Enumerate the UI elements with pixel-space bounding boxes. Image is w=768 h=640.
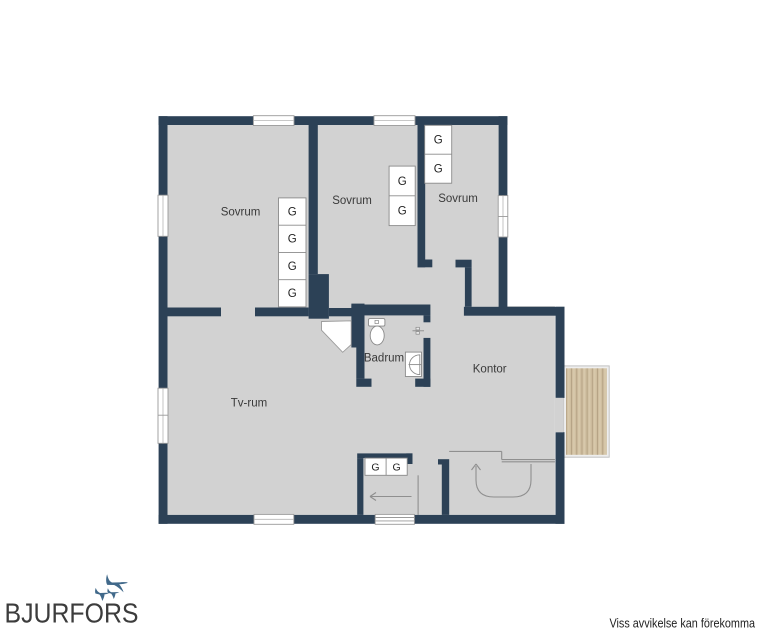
svg-text:Sovrum: Sovrum xyxy=(332,195,372,207)
svg-text:G: G xyxy=(288,207,297,219)
svg-text:Kontor: Kontor xyxy=(473,364,507,376)
svg-text:Sovrum: Sovrum xyxy=(438,193,478,205)
svg-text:G: G xyxy=(398,176,407,188)
svg-text:G: G xyxy=(288,261,297,273)
svg-text:G: G xyxy=(393,462,401,474)
svg-text:G: G xyxy=(288,234,297,246)
svg-text:Viss avvikelse kan förekomma: Viss avvikelse kan förekomma xyxy=(610,616,756,631)
svg-text:Badrum: Badrum xyxy=(364,353,404,365)
svg-text:BJURFORS: BJURFORS xyxy=(5,598,139,629)
svg-text:G: G xyxy=(288,288,297,300)
svg-text:G: G xyxy=(434,164,443,176)
svg-text:G: G xyxy=(398,206,407,218)
svg-text:G: G xyxy=(371,462,379,474)
svg-text:G: G xyxy=(434,135,443,147)
svg-text:Sovrum: Sovrum xyxy=(221,207,261,219)
svg-text:Tv-rum: Tv-rum xyxy=(231,397,267,409)
